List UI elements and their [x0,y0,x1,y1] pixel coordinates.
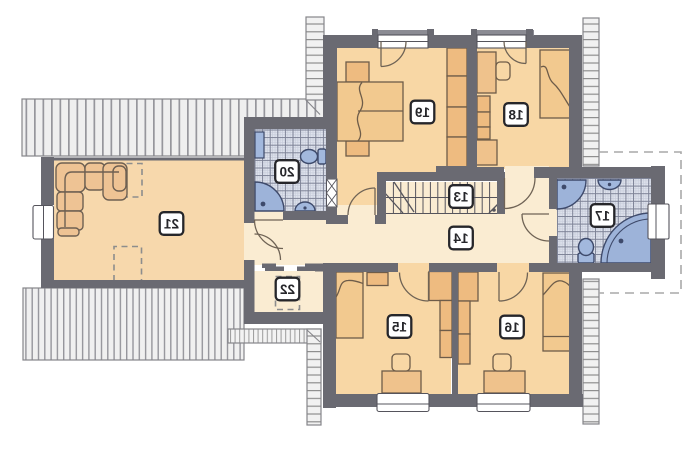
svg-text:21: 21 [164,216,180,231]
svg-text:17: 17 [595,208,610,223]
svg-text:22: 22 [280,282,295,297]
svg-text:15: 15 [392,319,408,334]
svg-text:16: 16 [504,320,520,335]
svg-text:13: 13 [453,189,469,204]
svg-text:19: 19 [415,105,430,120]
svg-text:14: 14 [453,231,469,246]
svg-text:20: 20 [279,164,294,179]
svg-text:18: 18 [508,107,524,122]
